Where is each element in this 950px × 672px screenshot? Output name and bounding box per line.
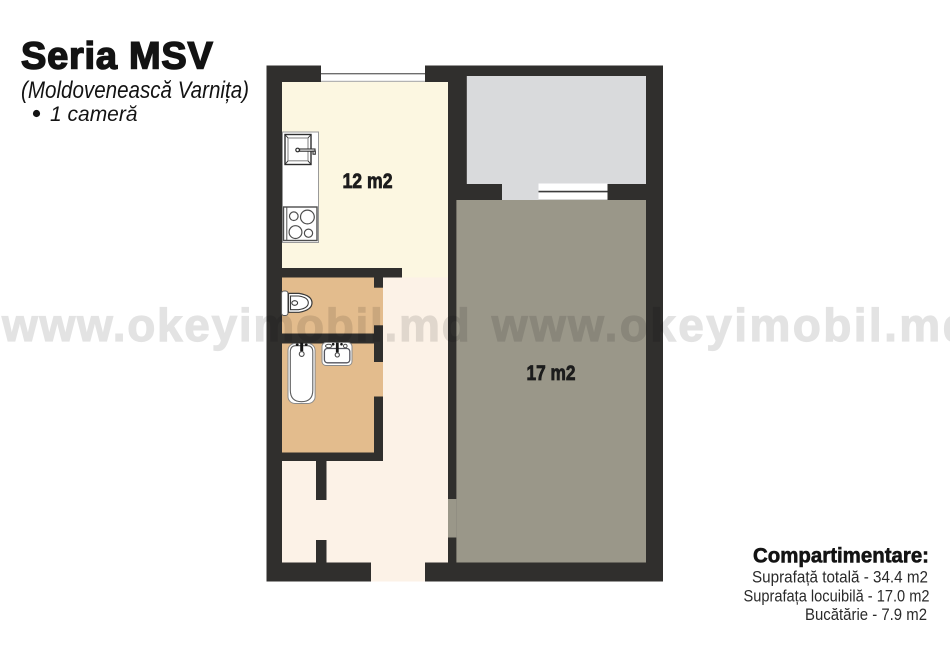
svg-text:Seria MSV: Seria MSV bbox=[21, 36, 214, 78]
svg-text:Suprafață totală - 34.4 m2: Suprafață totală - 34.4 m2 bbox=[752, 569, 928, 587]
svg-text:Suprafața locuibilă - 17.0 m2: Suprafața locuibilă - 17.0 m2 bbox=[744, 588, 930, 606]
svg-text:www.okeyimobil.md: www.okeyimobil.md bbox=[491, 299, 950, 351]
svg-text:1 cameră: 1 cameră bbox=[50, 103, 138, 126]
svg-text:12 m2: 12 m2 bbox=[343, 169, 393, 193]
svg-text:17 m2: 17 m2 bbox=[527, 361, 576, 385]
svg-text:Bucătărie - 7.9 m2: Bucătărie - 7.9 m2 bbox=[805, 606, 927, 624]
svg-text:Compartimentare:: Compartimentare: bbox=[753, 544, 929, 568]
svg-text:www.okeyimobil.md: www.okeyimobil.md bbox=[1, 299, 471, 351]
svg-text:(Moldovenească Varnița): (Moldovenească Varnița) bbox=[21, 77, 249, 104]
